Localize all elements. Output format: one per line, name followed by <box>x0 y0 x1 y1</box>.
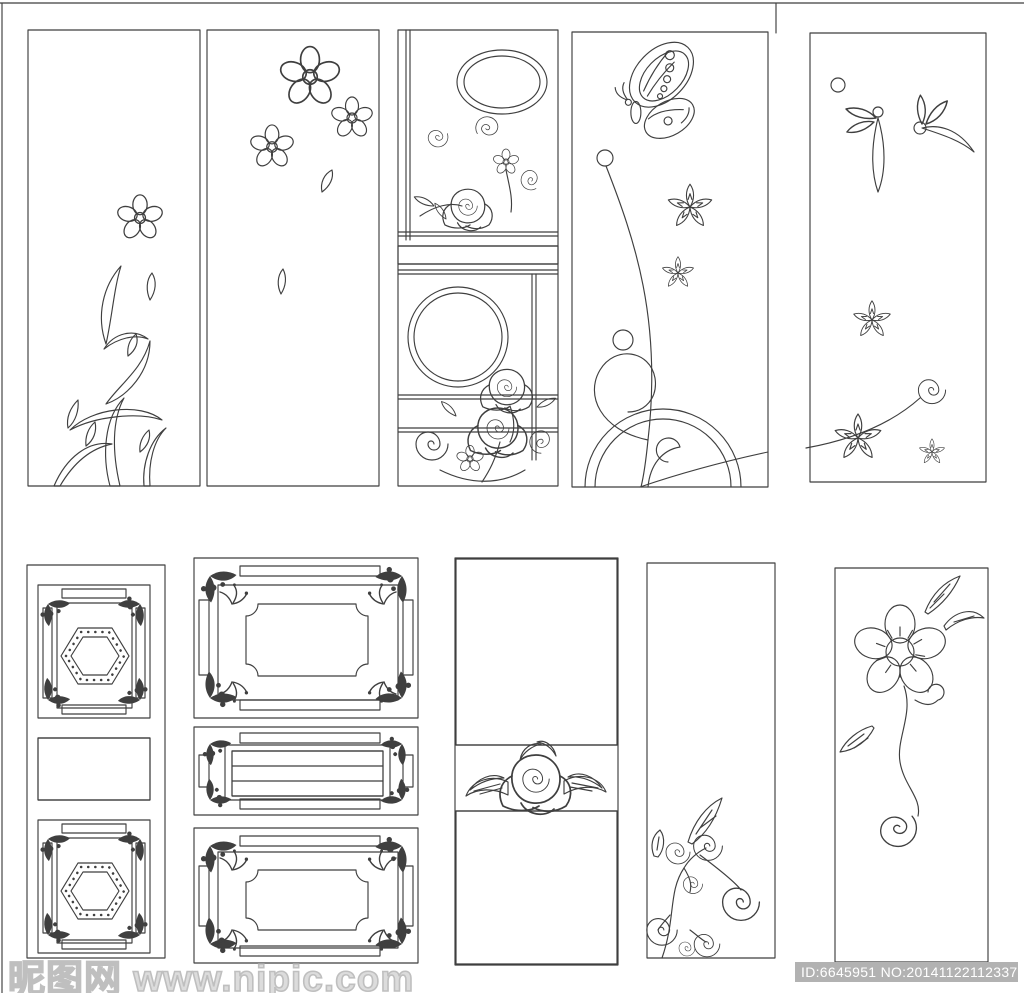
image-id-bar: ID:6645951 NO:20141122112337151000 <box>795 962 1018 982</box>
panel-top-vine-flower <box>28 30 200 486</box>
panel-bottom-triple-ornate-frames <box>194 558 418 963</box>
panel-bottom-hexagon-medallions <box>27 565 165 958</box>
panel-bottom-quilted-rose <box>455 558 618 965</box>
panel-top-leaf-spray <box>806 33 986 482</box>
panel-bottom-spiral-branch <box>647 563 775 958</box>
panel-bottom-flower-swirl-stem <box>835 568 988 962</box>
design-sheet: 昵图网 www.nipic.com ID:6645951 NO:20141122… <box>0 0 1024 993</box>
panel-artwork <box>0 0 1024 993</box>
panel-top-ornate-mirror <box>398 30 558 486</box>
panel-top-butterfly-garden <box>572 23 768 487</box>
panel-top-falling-blossoms <box>207 30 379 486</box>
butterfly-icon <box>603 23 725 153</box>
sheet-frame-lines <box>0 3 1024 993</box>
nipic-watermark-text: 昵图网 www.nipic.com <box>8 948 414 993</box>
